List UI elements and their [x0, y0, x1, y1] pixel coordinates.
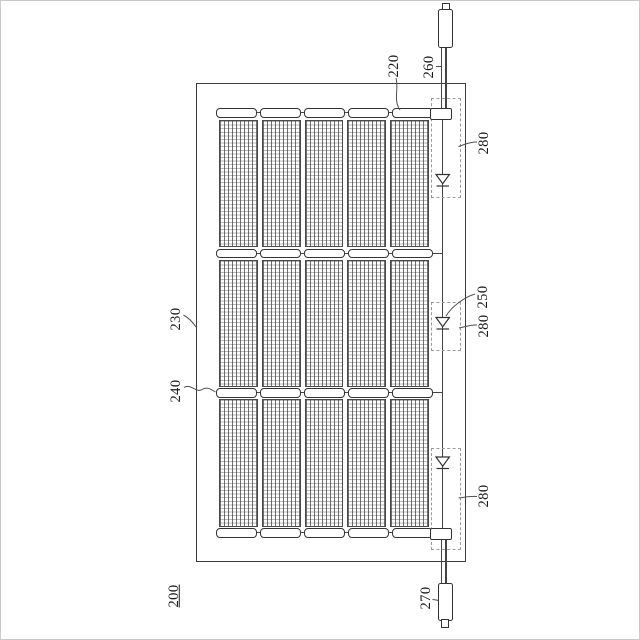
figure-number-label: 200 — [166, 585, 181, 608]
busbar-segment — [392, 388, 433, 398]
busbar-1 — [216, 108, 433, 118]
busbar-1-extension — [430, 108, 452, 120]
patent-figure-canvas: 220 260 280 250 280 280 230 240 270 200 — [0, 0, 640, 640]
busbar-segment — [216, 249, 257, 259]
cell-strip — [219, 399, 258, 527]
busbar-segment — [260, 388, 301, 398]
busbar-segment — [348, 528, 389, 538]
ref-label-280-top: 280 — [477, 132, 492, 155]
busbar-segment — [260, 108, 301, 118]
ref-label-270: 270 — [419, 587, 434, 610]
busbar-4-extension — [430, 528, 452, 540]
cell-group-2 — [219, 260, 429, 387]
cell-strip — [347, 399, 386, 527]
cell-strip — [262, 399, 301, 527]
ref-label-220: 220 — [387, 55, 402, 78]
cell-strip — [390, 260, 429, 387]
busbar-segment — [216, 528, 257, 538]
ref-label-230: 230 — [168, 308, 183, 331]
ref-label-280-bottom: 280 — [477, 485, 492, 508]
busbar-segment — [348, 249, 389, 259]
cell-strip — [262, 120, 301, 248]
busbar-segment — [260, 249, 301, 259]
ref-label-240: 240 — [168, 379, 183, 402]
cell-group-3 — [219, 399, 429, 527]
top-connector — [438, 9, 453, 49]
cell-strip — [390, 399, 429, 527]
busbar-segment — [304, 528, 345, 538]
cell-strip — [305, 120, 344, 248]
busbar-2 — [216, 249, 433, 259]
busbar-segment — [216, 108, 257, 118]
ref-label-280-middle: 280 — [477, 315, 492, 338]
bottom-connector-nub — [441, 619, 449, 628]
cell-strip — [305, 399, 344, 527]
busbar-segment — [304, 388, 345, 398]
busbar-segment — [260, 528, 301, 538]
busbar-4 — [216, 528, 433, 538]
cell-group-1 — [219, 120, 429, 248]
bottom-connector — [438, 583, 453, 621]
cell-strip — [219, 120, 258, 248]
busbar-segment — [304, 249, 345, 259]
cell-strip — [347, 120, 386, 248]
cell-strip — [262, 260, 301, 387]
busbar-segment — [304, 108, 345, 118]
ref-label-250: 250 — [476, 286, 491, 309]
busbar-segment — [392, 528, 433, 538]
busbar-segment — [348, 388, 389, 398]
cell-strip — [219, 260, 258, 387]
busbar-segment — [348, 108, 389, 118]
busbar-segment — [216, 388, 257, 398]
leader-line-230 — [184, 315, 197, 328]
junction-box-middle — [431, 302, 461, 351]
cell-strip — [347, 260, 386, 387]
busbar-3 — [216, 388, 433, 398]
busbar-segment — [392, 108, 433, 118]
cell-strip — [305, 260, 344, 387]
cell-strip — [390, 120, 429, 248]
busbar-segment — [392, 249, 433, 259]
ref-label-260: 260 — [422, 55, 437, 78]
